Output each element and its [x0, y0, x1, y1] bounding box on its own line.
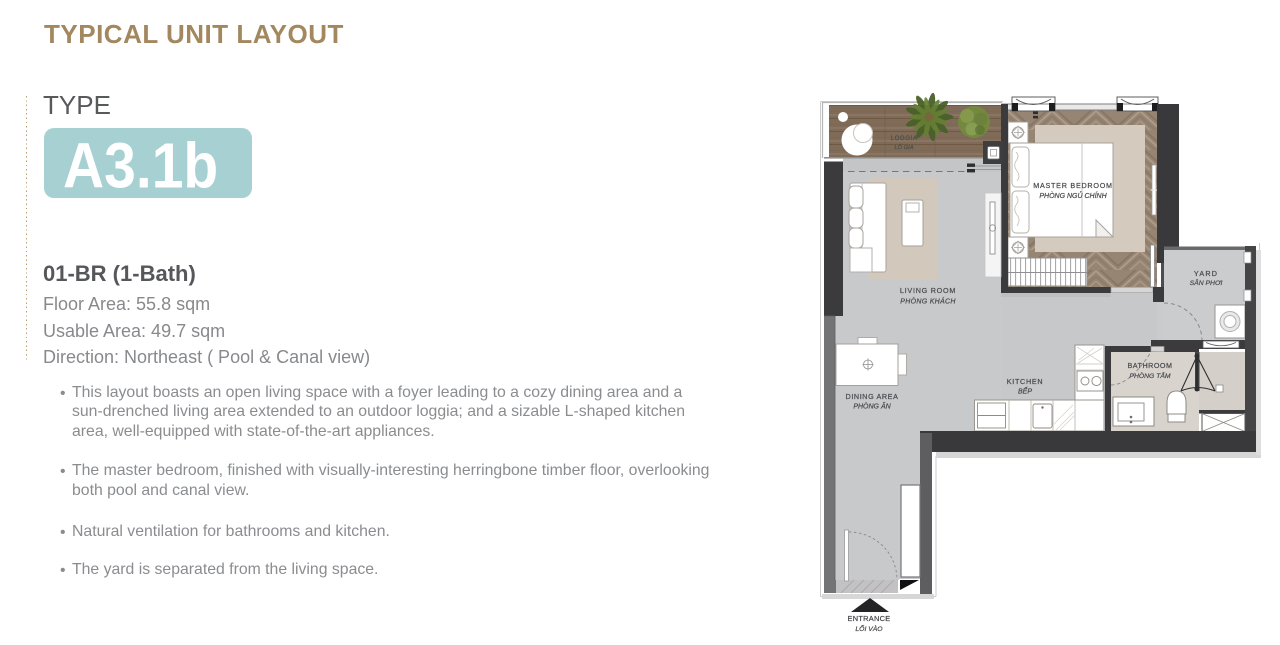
svg-text:LIVING ROOM: LIVING ROOM: [900, 286, 956, 295]
svg-text:SÂN PHƠI: SÂN PHƠI: [1190, 278, 1223, 287]
svg-text:PHÒNG ĂN: PHÒNG ĂN: [853, 402, 891, 411]
svg-text:BẾP: BẾP: [1018, 387, 1032, 396]
svg-text:KITCHEN: KITCHEN: [1007, 377, 1043, 386]
svg-text:ENTRANCE: ENTRANCE: [847, 614, 890, 623]
svg-text:LỐI VÀO: LỐI VÀO: [855, 624, 883, 633]
svg-text:YARD: YARD: [1194, 269, 1218, 278]
svg-text:BATHROOM: BATHROOM: [1128, 361, 1173, 370]
svg-text:DINING AREA: DINING AREA: [846, 392, 899, 401]
svg-text:LOGGIA: LOGGIA: [891, 135, 918, 142]
svg-text:PHÒNG NGỦ CHÍNH: PHÒNG NGỦ CHÍNH: [1039, 191, 1107, 200]
svg-text:MASTER BEDROOM: MASTER BEDROOM: [1033, 181, 1113, 190]
svg-text:PHÒNG KHÁCH: PHÒNG KHÁCH: [900, 297, 956, 306]
svg-text:PHÒNG TẮM: PHÒNG TẮM: [1129, 371, 1170, 380]
svg-text:LÔ GIA: LÔ GIA: [894, 144, 913, 151]
